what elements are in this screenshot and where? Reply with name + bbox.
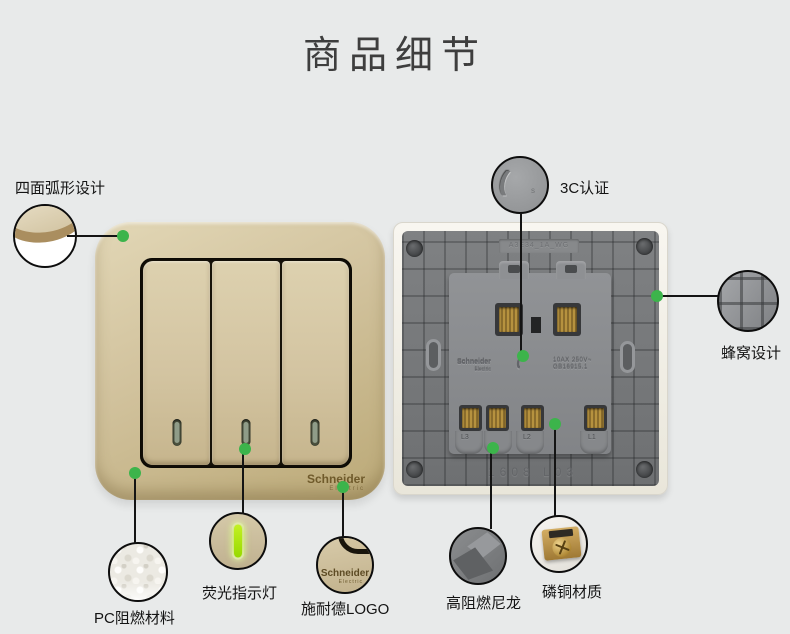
brass-contact [587,408,604,428]
callout-label-pc-material: PC阻燃材料 [94,607,175,628]
indicator-light-detail-image [209,512,267,570]
rocker-indicator-slot [311,419,320,446]
connector-line [342,488,344,538]
spec-line-2: GB16915.1 [553,365,588,371]
mounting-slot [426,339,441,371]
brand-emboss-line: Schneider [457,359,491,366]
brass-contact [557,307,577,332]
callout-point-dot [651,290,663,302]
brand-sub: Electric [307,486,365,492]
callout-label-nylon: 高阻燃尼龙 [446,592,521,613]
wire-terminal [459,405,482,431]
brass-contact [489,408,506,428]
callout-point-dot [549,418,561,430]
schneider-logo: Schneider Electric [307,473,365,492]
brand-emboss-sub: Electric [457,367,491,373]
copper-terminal-detail-image [530,515,588,573]
connector-line [490,449,492,529]
brass-contact [524,408,541,428]
callout-point-dot [337,481,349,493]
brand-emboss: Schneider Electric [457,359,491,373]
brand-name: Schneider [307,473,365,485]
callout-point-dot [239,443,251,455]
screw-hole [406,461,423,478]
spec-line-1: 10AX 250V~ [553,358,592,364]
pc-pellets-detail-image [108,542,168,602]
callout-point-dot [117,230,129,242]
callout-label-copper: 磷铜材质 [542,581,602,602]
logo-detail-image: Schneider Electric [316,536,374,594]
callout-label-logo: 施耐德LOGO [301,598,389,619]
nylon-detail-image [449,527,507,585]
back-honeycomb-grid: A3E34_1A_WG Schneider Electric ((( 10AX … [402,231,659,486]
rocker-recess [140,258,352,468]
switch-front-panel: Schneider Electric [95,222,385,500]
wire-terminal [553,303,581,336]
callout-label-honeycomb: 蜂窝设计 [721,342,781,363]
rocker-indicator-slot [241,419,250,446]
brass-contact [499,307,519,332]
model-plate: A3E34_1A_WG [499,239,579,253]
callout-point-dot [517,350,529,362]
terminal-label: L2 [523,434,531,441]
connector-line [242,450,244,514]
mechanism-block: Schneider Electric ((( 10AX 250V~ GB1691… [449,273,611,454]
terminal-slot-shape [549,529,574,538]
wire-terminal [486,405,509,431]
rocker-indicator-slot [172,419,181,446]
ccc-mark-detail-image: ((( s [491,156,549,214]
connector-line [520,213,522,356]
product-detail-canvas: 商品细节 Schneider Electric A3E34 [0,0,790,634]
honeycomb-detail-image [717,270,779,332]
mounting-slot [620,341,635,373]
ccc-s-mark: s [531,186,535,195]
terminal-tab [455,431,483,454]
rocker-switch-3[interactable] [282,261,349,465]
terminal-label: L3 [461,434,469,441]
wire-terminal [521,405,544,431]
brass-terminal-shape [541,526,581,561]
screw-hole [636,461,653,478]
led-glow-shape [234,525,242,558]
terminal-stub [556,261,586,279]
rocker-corner-shape [338,536,374,554]
indicator-led-icon [232,523,244,560]
callout-label-ccc: 3C认证 [560,177,609,198]
pellets-fade-shape [110,582,166,600]
center-slot [531,317,541,333]
screw-hole [636,238,653,255]
connector-line [659,295,718,297]
spec-emboss: 10AX 250V~ GB16915.1 [553,358,592,372]
page-title: 商品细节 [0,24,790,79]
connector-line [67,235,123,237]
switch-back-panel: A3E34_1A_WG Schneider Electric ((( 10AX … [393,222,668,495]
callout-label-indicator: 荧光指示灯 [202,582,277,603]
wire-terminal [495,303,523,336]
callout-point-dot [487,442,499,454]
terminal-label: L1 [588,434,596,441]
logo-brand-text: Schneider [318,568,372,579]
callout-label-corner-design: 四面弧形设计 [15,177,105,198]
callout-point-dot [129,467,141,479]
terminal-stub [499,261,529,279]
wire-terminal [584,405,607,431]
connector-line [134,474,136,544]
ccc-mark-icon: ((( [497,166,502,197]
screw-head-icon [551,537,572,558]
rocker-switch-2[interactable] [212,261,279,465]
rocker-switch-1[interactable] [143,261,210,465]
connector-line [554,425,556,517]
screw-hole [406,240,423,257]
batch-code: 1608 L03 [488,465,578,479]
logo-brand-sub: Electric [339,579,363,585]
brass-contact [462,408,479,428]
